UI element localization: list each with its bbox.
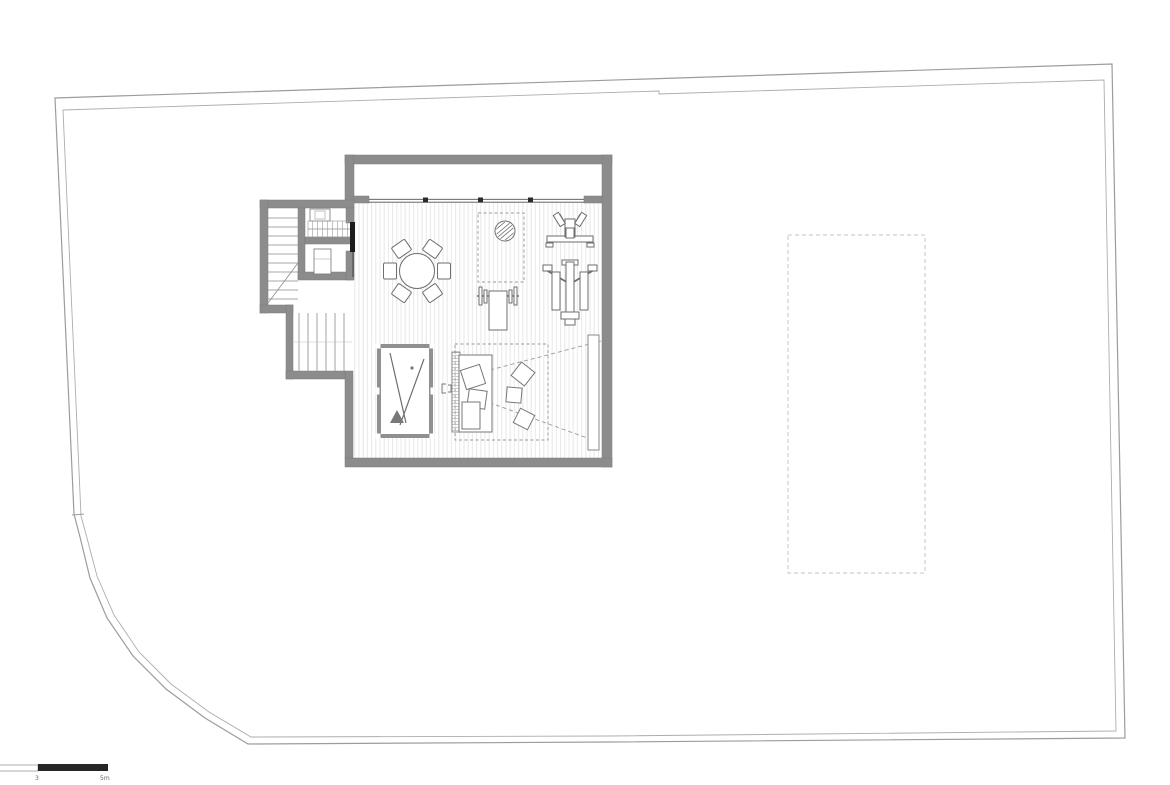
- dining-table: [400, 254, 435, 289]
- wall-annex-top: [260, 200, 354, 208]
- floor-plan-page: 3 5m: [0, 0, 1170, 785]
- gym-rail-left: [552, 272, 560, 310]
- gym-center-post: [566, 262, 574, 314]
- wall-sill-left: [353, 196, 369, 203]
- scale-bar-black-segment: [38, 764, 108, 771]
- bean-bag: [506, 387, 522, 403]
- wc-fixture: [314, 249, 331, 274]
- wall-stair-west: [286, 305, 293, 379]
- wall-window-well-left: [345, 155, 354, 203]
- gym-base-foot: [565, 319, 575, 325]
- barbell-plate: [509, 290, 512, 303]
- wall-stair-partition: [298, 208, 305, 279]
- stair-break-line: [268, 263, 298, 303]
- wall-sill-right: [584, 196, 602, 203]
- sofa-cushion: [462, 402, 480, 429]
- wall-west-lower: [345, 371, 353, 458]
- wall-sauna-divider: [305, 237, 353, 244]
- barbell-plate: [484, 290, 487, 303]
- scale-bar-white-segment: [0, 765, 38, 771]
- wall-window-well-top: [345, 155, 612, 164]
- sauna-bench-lower: [308, 229, 351, 237]
- floor-plan-canvas: 3 5m: [0, 0, 1170, 785]
- window-band: [369, 198, 584, 203]
- pool-outline-above: [788, 235, 925, 573]
- building: [260, 155, 612, 467]
- window-mullion: [528, 198, 533, 203]
- barbell-plate: [479, 287, 482, 305]
- stair-upper-treads: [268, 218, 298, 299]
- machine-seat: [566, 228, 574, 238]
- window-glazing-lines: [369, 199, 584, 202]
- bench: [489, 291, 507, 330]
- chair: [384, 263, 397, 279]
- sauna-room: [308, 209, 351, 237]
- door-leaf: [350, 222, 355, 252]
- wall-east: [602, 155, 612, 467]
- machine-foot: [546, 243, 553, 247]
- stove-inner: [315, 211, 325, 219]
- projector-screen: [588, 335, 599, 450]
- wall-south: [345, 458, 612, 467]
- chair: [438, 263, 451, 279]
- scale-bar: 3 5m: [0, 764, 110, 782]
- window-mullion: [478, 198, 483, 203]
- window-mullion: [423, 198, 428, 203]
- gym-base: [561, 312, 579, 319]
- sauna-bench-upper: [308, 221, 351, 229]
- gym-cap-right: [588, 265, 597, 271]
- billiard-ball: [410, 366, 413, 369]
- scale-label-5m: 5m: [100, 775, 110, 782]
- machine-foot: [587, 243, 594, 247]
- barbell-plate: [514, 287, 517, 305]
- gym-rail-right: [580, 272, 588, 310]
- scale-label-3: 3: [35, 775, 39, 782]
- wc-room: [314, 249, 331, 274]
- billiard-table: [376, 344, 435, 439]
- wall-stair-bottom: [286, 371, 345, 379]
- wall-annex-left: [260, 200, 268, 313]
- gym-cap-left: [543, 265, 552, 271]
